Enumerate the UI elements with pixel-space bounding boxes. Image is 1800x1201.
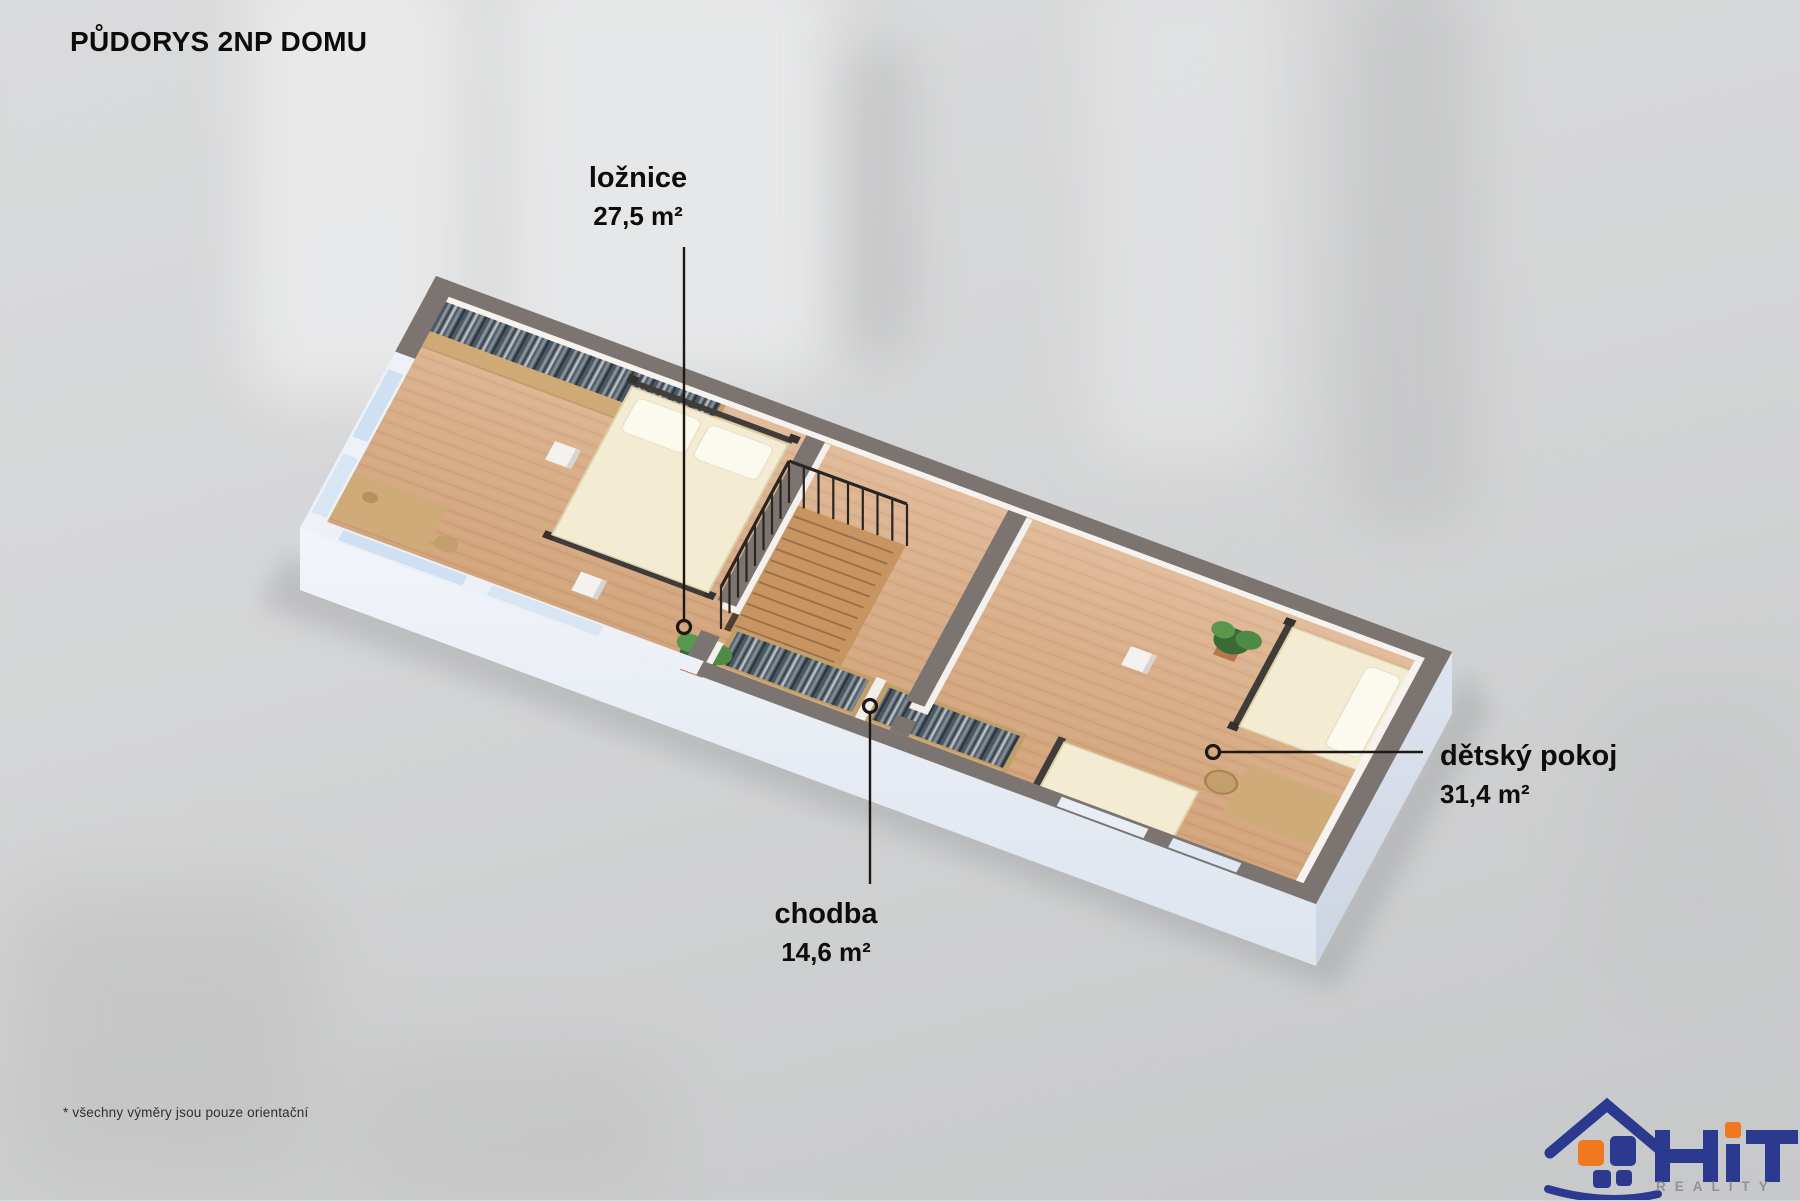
room-area: 14,6 m² (774, 936, 877, 969)
house-icon (1548, 1105, 1664, 1199)
page-title: PŮDORYS 2NP DOMU (70, 26, 367, 58)
brand-wordmark (1655, 1122, 1798, 1182)
disclaimer-note: * všechny výměry jsou pouze orientační (63, 1105, 308, 1120)
floorplan-3d-render (0, 0, 1800, 1200)
room-name: dětský pokoj (1440, 738, 1617, 774)
brand-logo: HiT REALITY (1470, 1048, 1800, 1200)
room-area: 27,5 m² (589, 200, 687, 233)
room-label-loznice: ložnice 27,5 m² (589, 160, 687, 233)
brand-subtitle: REALITY (1656, 1179, 1777, 1194)
room-name: ložnice (589, 160, 687, 196)
room-area: 31,4 m² (1440, 778, 1617, 811)
brand-logo-graphic (1470, 1048, 1800, 1200)
room-label-chodba: chodba 14,6 m² (774, 896, 877, 969)
room-label-detsky-pokoj: dětský pokoj 31,4 m² (1440, 738, 1617, 811)
room-name: chodba (774, 896, 877, 932)
